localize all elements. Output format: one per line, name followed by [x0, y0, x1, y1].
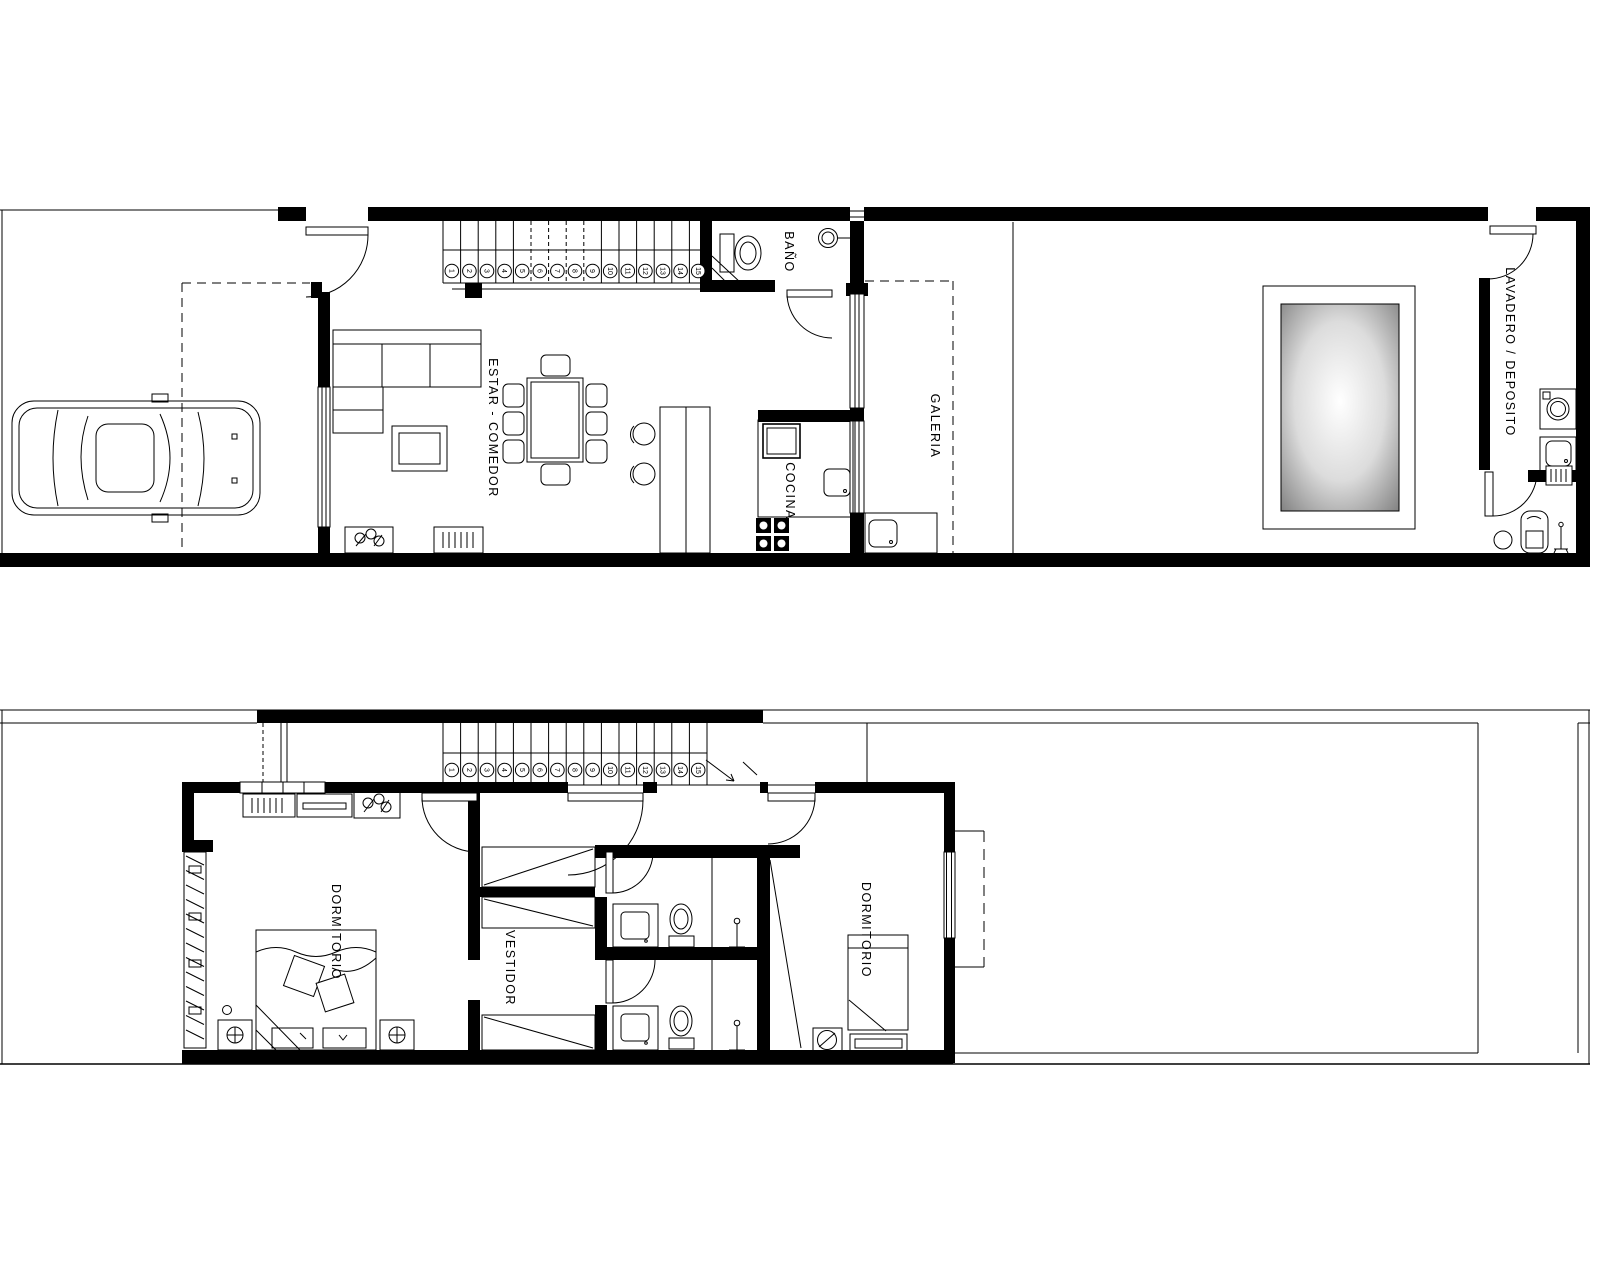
- room-label-galeria: GALERIA: [928, 394, 942, 459]
- bar-stool: [630, 423, 655, 445]
- laundry-storage: [1485, 226, 1576, 553]
- stove: [756, 518, 789, 551]
- single-bed: [848, 935, 908, 1053]
- upper-bathroom-1: [613, 858, 745, 947]
- room-label-dormitorio-secundario: DORMITORIO: [859, 882, 873, 978]
- stair-step-number: 1: [447, 269, 454, 273]
- galeria: [865, 222, 1013, 553]
- balcony: [955, 831, 984, 967]
- louver-window: [184, 852, 206, 1048]
- vent-grille: [1546, 466, 1572, 485]
- stair-step-number: 5: [518, 768, 525, 772]
- stair-step-number: 8: [571, 269, 578, 273]
- stair-step-number: 7: [553, 269, 560, 273]
- stair-step-number: 11: [623, 267, 630, 274]
- stair-step-number: 10: [606, 766, 613, 774]
- galeria-window-2: [850, 421, 864, 513]
- living-window: [318, 387, 330, 527]
- washing-machine: [1540, 389, 1576, 429]
- stair-step-number: 13: [659, 267, 666, 275]
- stair-step-number: 9: [588, 768, 595, 772]
- stair-step-number: 9: [588, 269, 595, 273]
- tv-cabinet: [434, 527, 483, 553]
- upper-floor-plan: 123456789101112131415: [0, 710, 1590, 1064]
- bucket: [1494, 531, 1512, 549]
- stair-step-number: 6: [535, 768, 542, 772]
- bedroom2-window: [944, 852, 955, 938]
- bath-door: [787, 290, 832, 338]
- stair-step-number: 15: [694, 766, 701, 774]
- room-label-lavadero-deposito: LAVADERO / DEPOSITO: [1503, 267, 1517, 437]
- upper-bathroom-2: [613, 960, 745, 1050]
- stair-step-number: 13: [659, 766, 666, 774]
- stair-step-numbers-upper: 123456789101112131415: [445, 763, 705, 777]
- bar-stool: [630, 463, 655, 485]
- shower-head: [729, 1020, 745, 1050]
- living-dining: [333, 330, 607, 553]
- nightstand: [813, 1028, 842, 1053]
- nightstand: [380, 1020, 414, 1050]
- bath-sink: [819, 229, 851, 248]
- stair-step-number: 15: [694, 267, 701, 275]
- bathroom1-door: [606, 852, 653, 893]
- nightstand: [218, 1006, 252, 1051]
- galeria-window-upper: [850, 211, 864, 217]
- stair-step-number: 3: [483, 768, 490, 772]
- stair-step-number: 4: [500, 768, 507, 772]
- master-bedroom: [218, 792, 414, 1050]
- car: [12, 394, 260, 522]
- pool: [1263, 286, 1415, 529]
- water-heater: [1521, 511, 1548, 553]
- kitchen-sink: [824, 469, 850, 496]
- staircase-upper: 123456789101112131415: [263, 723, 867, 785]
- kitchen: [630, 407, 853, 553]
- stair-step-number: 4: [500, 269, 507, 273]
- fridge: [763, 424, 800, 458]
- galeria-window-1: [850, 294, 864, 408]
- stair-step-number: 3: [483, 269, 490, 273]
- broom: [1554, 522, 1568, 553]
- stair-step-number: 12: [641, 766, 648, 774]
- stair-step-number: 2: [465, 768, 472, 772]
- galeria-sink: [865, 513, 937, 553]
- double-bed: [256, 930, 376, 1050]
- sofa: [333, 330, 481, 433]
- dresser-shelf: [243, 792, 400, 818]
- stair-step-numbers-ground: 123456789101112131415: [445, 264, 705, 278]
- stair-step-number: 14: [676, 766, 683, 774]
- bed-bench: [272, 1028, 366, 1048]
- lot-boundary-ground: [0, 210, 278, 553]
- stair-step-number: 14: [676, 267, 683, 275]
- windows-upper: [184, 782, 955, 1048]
- stair-step-number: 11: [623, 766, 630, 773]
- room-label-cocina: COCINA: [783, 462, 797, 520]
- wardrobe-line: [770, 860, 801, 1048]
- shower-head: [729, 918, 745, 947]
- room-label-estar-comedor: ESTAR - COMEDOR: [486, 358, 500, 498]
- planter-box: [345, 527, 393, 553]
- floorplan-canvas: 123456789101112131415: [0, 0, 1600, 1280]
- stair-step-number: 1: [447, 768, 454, 772]
- stair-step-number: 8: [571, 768, 578, 772]
- walk-in-closet: [482, 847, 595, 1050]
- bedroom1-window: [240, 782, 325, 793]
- toilet: [720, 234, 761, 272]
- ground-floor-plan: 123456789101112131415: [0, 207, 1590, 567]
- stair-direction-arrow: [706, 760, 757, 781]
- stair-step-number: 7: [553, 768, 560, 772]
- stair-step-number: 10: [606, 267, 613, 275]
- stair-step-number: 12: [641, 267, 648, 275]
- coffee-table: [392, 426, 447, 471]
- stair-step-number: 2: [465, 269, 472, 273]
- bedroom2-door: [768, 793, 815, 844]
- floorplan-drawing: 123456789101112131415: [0, 0, 1600, 1280]
- dining-table: [503, 355, 607, 485]
- stair-step-number: 6: [535, 269, 542, 273]
- room-label-dormitorio-principal: DORMITORIO: [329, 884, 343, 980]
- staircase-ground: 123456789101112131415: [443, 221, 707, 289]
- carport: [12, 283, 310, 553]
- bathroom2-door: [606, 960, 655, 1003]
- stair-step-number: 5: [518, 269, 525, 273]
- room-label-bano: BAÑO: [782, 231, 796, 272]
- room-label-vestidor: VESTIDOR: [503, 930, 517, 1006]
